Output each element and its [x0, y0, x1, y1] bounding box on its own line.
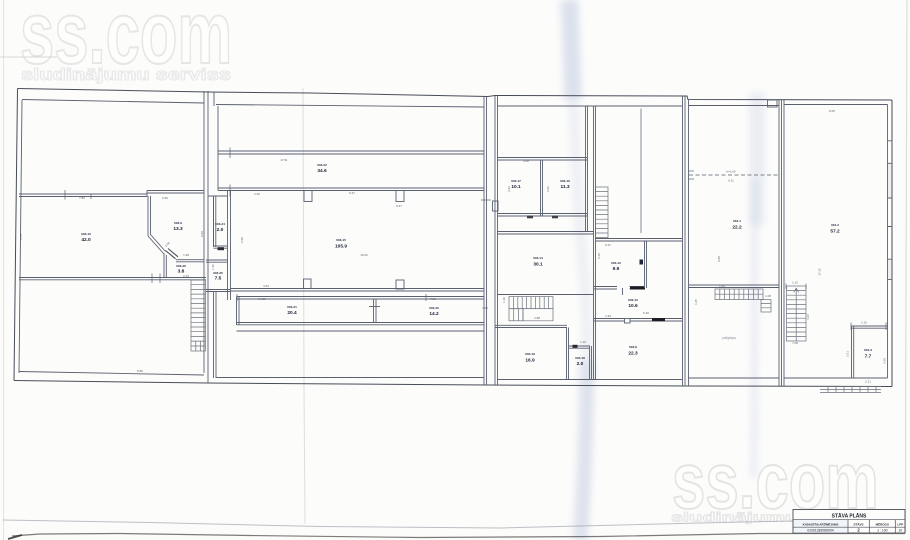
- svg-text:1.10: 1.10: [580, 340, 586, 344]
- svg-text:1.35: 1.35: [211, 264, 215, 270]
- svg-text:9.98: 9.98: [240, 237, 244, 243]
- svg-text:003-10: 003-10: [81, 232, 91, 236]
- svg-text:2.92: 2.92: [546, 186, 550, 192]
- svg-text:9.88: 9.88: [717, 256, 721, 262]
- svg-text:34.6: 34.6: [317, 168, 327, 174]
- svg-text:MĒROGS: MĒROGS: [876, 522, 889, 526]
- svg-text:2.51: 2.51: [846, 351, 850, 357]
- svg-text:KADASTRA APZĪMĒJUMS: KADASTRA APZĪMĒJUMS: [803, 522, 839, 526]
- svg-text:5.47: 5.47: [396, 204, 402, 208]
- svg-text:7.7: 7.7: [865, 354, 872, 360]
- svg-text:sludinājumu serviss: sludinājumu serviss: [21, 66, 231, 84]
- svg-text:003-20: 003-20: [429, 306, 439, 310]
- svg-text:5.47: 5.47: [605, 243, 611, 247]
- svg-text:004-3: 004-3: [864, 348, 872, 352]
- svg-text:5.40: 5.40: [643, 311, 649, 315]
- svg-text:8.05: 8.05: [829, 109, 835, 113]
- svg-text:13.3: 13.3: [173, 226, 183, 232]
- svg-text:003-15: 003-15: [336, 238, 346, 242]
- svg-text:003-14: 003-14: [533, 256, 543, 260]
- svg-text:10.1: 10.1: [511, 184, 521, 190]
- svg-text:105.9: 105.9: [335, 244, 347, 250]
- svg-text:palīgtelpa: palīgtelpa: [722, 336, 736, 340]
- svg-text:h=1.60: h=1.60: [727, 170, 736, 174]
- svg-text:003-8: 003-8: [629, 345, 637, 349]
- svg-text:22.3: 22.3: [628, 351, 638, 357]
- svg-text:003-19: 003-19: [525, 352, 535, 356]
- svg-text:01001282065004: 01001282065004: [807, 528, 834, 532]
- svg-text:14.30: 14.30: [258, 297, 266, 301]
- svg-text:003-26: 003-26: [176, 264, 186, 268]
- svg-text:2.21: 2.21: [865, 380, 871, 384]
- svg-text:3.26: 3.26: [806, 314, 810, 320]
- svg-text:LPP: LPP: [897, 522, 903, 526]
- svg-text:1.93: 1.93: [605, 314, 611, 318]
- svg-text:14.2: 14.2: [429, 311, 439, 317]
- svg-text:2.43: 2.43: [183, 274, 189, 278]
- svg-text:4.08: 4.08: [523, 159, 529, 163]
- svg-text:003-13: 003-13: [628, 298, 638, 302]
- svg-text:003-18: 003-18: [575, 356, 585, 360]
- svg-text:10: 10: [898, 528, 902, 532]
- svg-text:30.1: 30.1: [533, 262, 543, 268]
- svg-text:17.51: 17.51: [280, 158, 288, 162]
- svg-text:5.71: 5.71: [19, 234, 23, 240]
- svg-text:1.98: 1.98: [183, 253, 189, 257]
- svg-text:9.9: 9.9: [613, 266, 620, 272]
- svg-text:8.86: 8.86: [137, 369, 143, 373]
- svg-text:003-16: 003-16: [560, 179, 570, 183]
- svg-text:1.10: 1.10: [502, 297, 506, 303]
- svg-text:003-21: 003-21: [287, 305, 297, 309]
- svg-text:2.40: 2.40: [254, 192, 260, 196]
- svg-text:20.4: 20.4: [287, 310, 297, 316]
- svg-text:10.6: 10.6: [628, 303, 638, 309]
- svg-text:7.08: 7.08: [792, 341, 798, 345]
- svg-text:1.10: 1.10: [792, 281, 798, 285]
- svg-text:16.9: 16.9: [525, 358, 535, 364]
- svg-text:004-2: 004-2: [831, 223, 839, 227]
- svg-text:STĀVA PLĀNS: STĀVA PLĀNS: [832, 513, 867, 520]
- svg-text:6.96: 6.96: [162, 196, 168, 200]
- svg-text:003-22: 003-22: [317, 163, 327, 167]
- svg-text:17.32: 17.32: [818, 268, 822, 276]
- svg-text:1.45: 1.45: [694, 299, 698, 305]
- svg-text:2.10: 2.10: [861, 321, 867, 325]
- svg-text:1.08: 1.08: [765, 294, 771, 298]
- svg-text:2.88: 2.88: [534, 316, 540, 320]
- svg-text:4.60: 4.60: [263, 284, 269, 288]
- svg-text:003-25: 003-25: [213, 271, 223, 275]
- svg-text:2.92: 2.92: [507, 186, 511, 192]
- svg-text:2.0: 2.0: [577, 361, 584, 367]
- svg-text:7.20: 7.20: [430, 297, 436, 301]
- svg-text:3.60: 3.60: [883, 358, 887, 364]
- svg-text:003-17: 003-17: [511, 179, 521, 183]
- svg-text:57.2: 57.2: [830, 229, 840, 235]
- svg-text:16.00: 16.00: [360, 253, 368, 257]
- svg-text:003-24: 003-24: [215, 222, 225, 226]
- svg-text:6.11: 6.11: [728, 179, 734, 183]
- svg-text:5.68: 5.68: [597, 253, 601, 259]
- svg-text:11.3: 11.3: [560, 184, 569, 190]
- svg-text:1 : 100: 1 : 100: [877, 528, 887, 532]
- svg-text:22.2: 22.2: [732, 225, 742, 231]
- svg-text:5.47: 5.47: [349, 191, 355, 195]
- svg-text:003-9: 003-9: [174, 221, 182, 225]
- svg-text:42.0: 42.0: [81, 237, 91, 243]
- svg-text:STĀVS: STĀVS: [853, 522, 863, 526]
- svg-text:7.00: 7.00: [482, 306, 488, 310]
- svg-text:1.40: 1.40: [719, 284, 725, 288]
- svg-text:0.90: 0.90: [200, 231, 204, 237]
- svg-text:004-1: 004-1: [733, 219, 741, 223]
- svg-text:003-12: 003-12: [611, 261, 621, 265]
- svg-text:2.0: 2.0: [217, 227, 224, 233]
- svg-text:7.5: 7.5: [215, 276, 222, 282]
- svg-text:7.80: 7.80: [79, 196, 85, 200]
